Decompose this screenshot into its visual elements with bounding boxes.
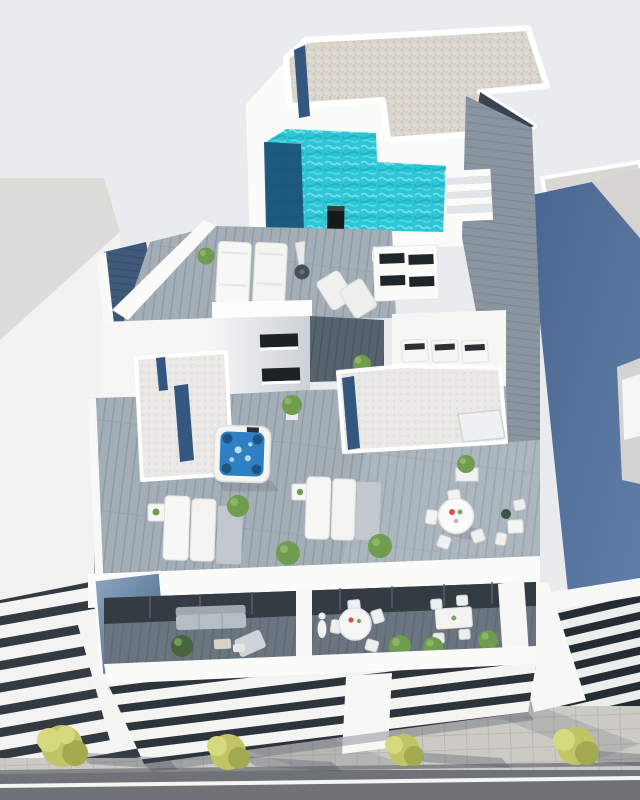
balcony-sofa (176, 605, 247, 630)
stairwell-vent (260, 333, 298, 347)
outdoor-shower-cap (327, 206, 344, 211)
coffee-table (233, 644, 245, 653)
bush (368, 534, 392, 558)
sun-lounger (163, 496, 190, 561)
dining-chair (459, 629, 471, 640)
render-canvas (0, 0, 640, 800)
balcony-plant (171, 635, 193, 657)
skylight-panel (458, 410, 505, 442)
standing-figure (318, 613, 327, 639)
louvered-plant-box (373, 245, 439, 301)
bistro-chair (495, 532, 507, 546)
sun-lounger (252, 242, 287, 305)
pool-deep-end (264, 142, 304, 231)
sun-lounger (190, 499, 216, 562)
stairwell-vent (262, 367, 300, 381)
side-table (292, 484, 308, 500)
dining-chair (425, 509, 438, 524)
ac-units (401, 336, 488, 366)
bistro-chair (513, 499, 526, 511)
dining-chair (456, 595, 468, 606)
side-table (148, 504, 165, 521)
bush (276, 541, 300, 565)
sun-lounger (331, 479, 356, 541)
balcony-round-table (339, 608, 371, 640)
bush (227, 495, 249, 517)
right-roof-notch (622, 374, 640, 440)
pool-steps (444, 169, 493, 222)
gravel-roof-right (338, 366, 506, 452)
topiary (198, 248, 215, 265)
dining-chair (431, 599, 443, 610)
deck-mat (355, 482, 381, 541)
dark-plant (501, 509, 511, 519)
balcony-divider (296, 588, 312, 660)
round-dining-table (439, 499, 474, 534)
coffee-table (214, 639, 232, 650)
sun-lounger (215, 241, 251, 305)
sun-lounger (305, 477, 331, 540)
bistro-table (508, 520, 524, 534)
